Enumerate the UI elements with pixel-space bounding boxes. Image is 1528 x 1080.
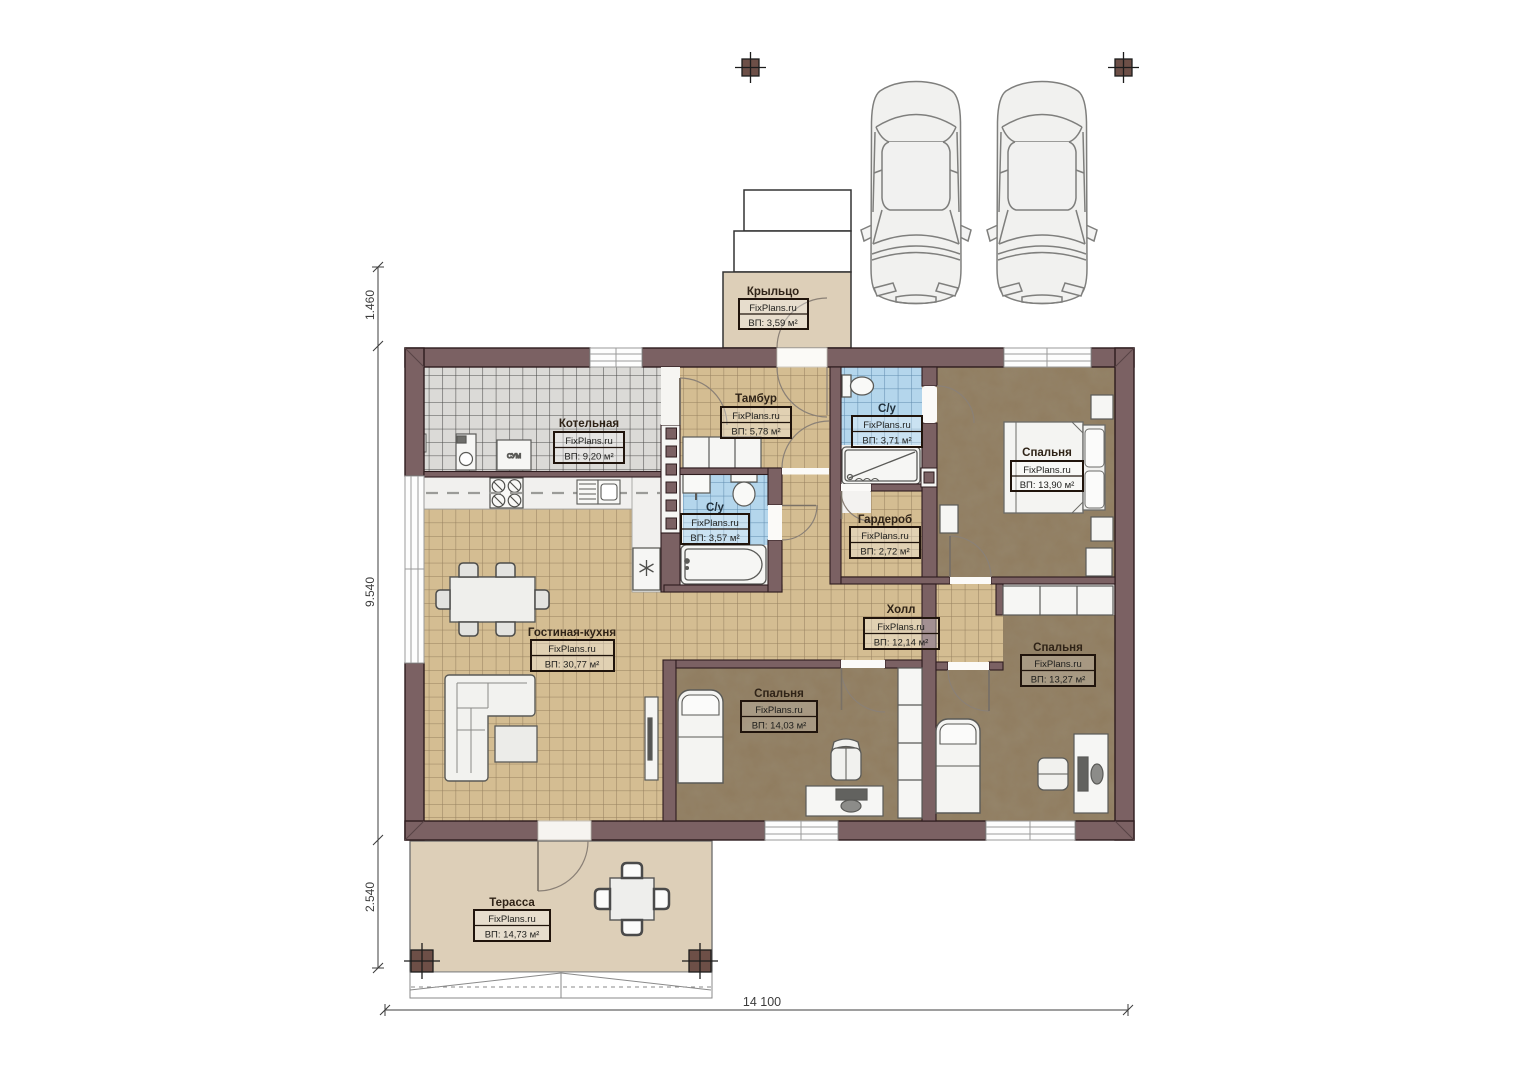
- svg-text:ВП: 3,59 м²: ВП: 3,59 м²: [748, 318, 797, 329]
- svg-text:Котельная: Котельная: [559, 418, 619, 430]
- svg-text:1.460: 1.460: [363, 290, 377, 320]
- svg-text:Спальня: Спальня: [1022, 447, 1072, 459]
- svg-text:ВП: 3,57 м²: ВП: 3,57 м²: [690, 533, 739, 544]
- svg-text:FixPlans.ru: FixPlans.ru: [548, 644, 596, 655]
- svg-text:Терасса: Терасса: [489, 897, 535, 909]
- svg-text:FixPlans.ru: FixPlans.ru: [877, 622, 925, 633]
- svg-text:С/у: С/у: [706, 502, 725, 514]
- svg-text:FixPlans.ru: FixPlans.ru: [1023, 465, 1071, 476]
- svg-text:ВП: 13,90 м²: ВП: 13,90 м²: [1020, 480, 1075, 491]
- svg-text:ВП: 14,03 м²: ВП: 14,03 м²: [752, 721, 807, 732]
- svg-text:Спальня: Спальня: [1033, 642, 1083, 654]
- svg-text:Гостиная-кухня: Гостиная-кухня: [528, 627, 616, 639]
- svg-text:С/у: С/у: [878, 403, 897, 415]
- svg-text:FixPlans.ru: FixPlans.ru: [732, 411, 780, 422]
- svg-text:FixPlans.ru: FixPlans.ru: [691, 518, 739, 529]
- svg-text:ВП: 9,20 м²: ВП: 9,20 м²: [564, 452, 613, 463]
- svg-text:FixPlans.ru: FixPlans.ru: [861, 531, 909, 542]
- svg-text:ВП: 5,78 м²: ВП: 5,78 м²: [731, 427, 780, 438]
- svg-text:ВП: 30,77 м²: ВП: 30,77 м²: [545, 660, 600, 671]
- svg-text:ВП: 12,14 м²: ВП: 12,14 м²: [874, 638, 929, 649]
- svg-text:FixPlans.ru: FixPlans.ru: [565, 436, 613, 447]
- svg-text:СУМ: СУМ: [507, 453, 521, 460]
- svg-text:Тамбур: Тамбур: [735, 393, 777, 405]
- svg-text:Спальня: Спальня: [754, 688, 804, 700]
- svg-text:ВП: 13,27 м²: ВП: 13,27 м²: [1031, 675, 1086, 686]
- svg-text:FixPlans.ru: FixPlans.ru: [863, 420, 911, 431]
- svg-text:FixPlans.ru: FixPlans.ru: [749, 303, 797, 314]
- svg-text:FixPlans.ru: FixPlans.ru: [488, 914, 536, 925]
- svg-text:14 100: 14 100: [743, 995, 781, 1009]
- svg-text:FixPlans.ru: FixPlans.ru: [755, 705, 803, 716]
- svg-text:ВП: 3,71 м²: ВП: 3,71 м²: [862, 436, 911, 447]
- svg-text:Гардероб: Гардероб: [858, 514, 912, 526]
- svg-text:ВП: 14,73 м²: ВП: 14,73 м²: [485, 930, 540, 941]
- svg-text:FixPlans.ru: FixPlans.ru: [1034, 659, 1082, 670]
- svg-text:Крыльцо: Крыльцо: [747, 286, 799, 298]
- svg-text:ВП: 2,72 м²: ВП: 2,72 м²: [860, 547, 909, 558]
- svg-text:9.540: 9.540: [363, 577, 377, 607]
- svg-text:2.540: 2.540: [363, 882, 377, 912]
- svg-text:Холл: Холл: [887, 604, 916, 616]
